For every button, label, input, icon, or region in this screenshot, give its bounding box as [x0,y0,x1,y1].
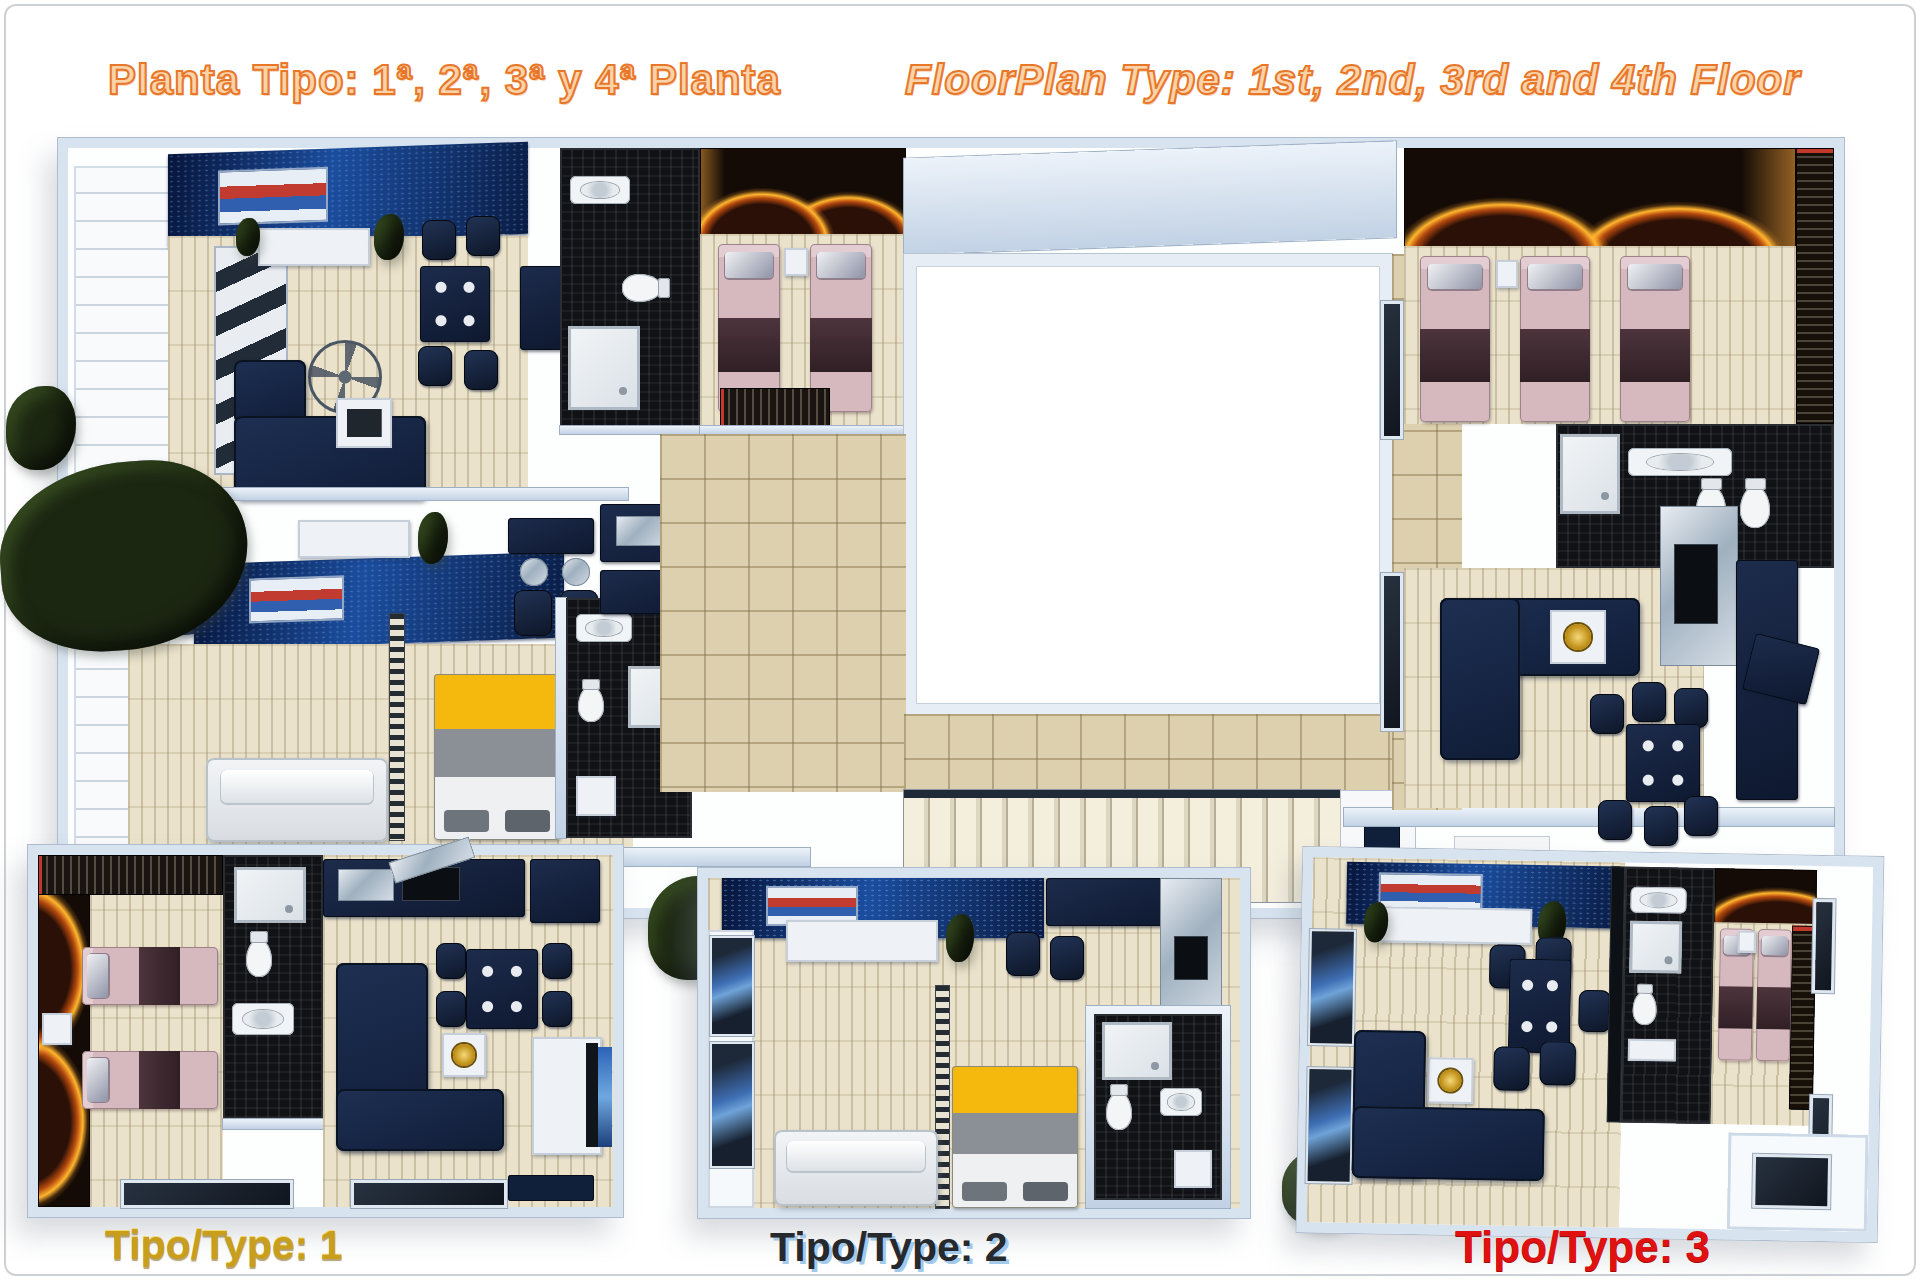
coffee-table [442,1033,486,1077]
washing-machine [1174,1150,1212,1188]
cooktop [1674,544,1718,624]
sofa-chaise [1440,598,1520,760]
dining-table [1508,959,1572,1054]
twin-bed [1620,256,1690,422]
type3-floor-plan [1297,847,1884,1242]
double-bed [952,1066,1078,1208]
t2-sideboard [786,920,938,962]
dining-chair [1632,682,1666,722]
coffee-table [1427,1057,1474,1104]
hallway-tiles [904,714,1392,792]
page-title-english: FloorPlan Type: 1st, 2nd, 3rd and 4th Fl… [905,56,1801,104]
dining-chair [464,350,498,390]
t1-wardrobe-rail [38,855,223,895]
sink [232,1003,294,1035]
nightstand [1738,931,1756,953]
toilet [246,939,272,977]
unit-b-sideboard [298,520,410,558]
interior-wall [556,598,566,838]
toilet [1106,1092,1132,1130]
wall-artwork [598,1047,612,1147]
dining-chair [1578,990,1611,1033]
t3-fire-ceiling [1714,868,1817,926]
coffee-table [336,398,392,448]
hallway-tiles [660,434,906,792]
bar-stool [520,558,548,586]
page-title-spanish: Planta Tipo: 1ª, 2ª, 3ª y 4ª Planta [108,56,781,104]
shower [1102,1022,1172,1080]
courtyard-window [1384,304,1400,436]
nightstand [42,1013,72,1045]
sofa [1352,1106,1545,1181]
shower [1560,434,1620,514]
twin-bed [718,244,780,412]
bedroom-fire-ceiling [700,148,906,236]
wall-artwork [712,938,752,1034]
shower [234,867,306,923]
wall-artwork [1308,1069,1352,1182]
sofa-chaise [234,360,306,424]
bathroom-cabinet [1628,1039,1676,1062]
toilet [578,686,604,722]
dining-chair [1644,806,1678,846]
white-sofa [206,758,388,842]
washing-machine [576,776,616,816]
front-wall-right [1344,808,1834,826]
sofa-chaise [336,1089,504,1151]
toilet [1632,991,1657,1025]
dining-chair [418,346,452,386]
dining-chair [1539,1041,1576,1086]
stool [1006,932,1040,976]
dining-chair [436,943,466,979]
dining-table [420,266,490,342]
unit-a-wall-poster [218,167,328,226]
dining-table [466,949,538,1029]
t3-sideboard [1380,906,1533,945]
bar-stool [562,558,590,586]
coffee-table [1550,610,1606,664]
twin-bed [1420,256,1490,422]
stool [1050,936,1084,980]
window [354,1183,504,1205]
oven [1174,936,1208,980]
wall-artwork [1310,931,1354,1044]
label-type-1: Tipo/Type: 1 [105,1222,343,1269]
twin-bed [1520,256,1590,422]
unit-b-wall-poster [249,575,344,623]
double-bed [434,674,560,840]
dining-chair [1598,800,1632,840]
courtyard-top-wall [904,141,1396,254]
tv-screen [586,1043,598,1147]
interior-wall [700,426,906,434]
fridge-cabinet [530,859,600,923]
type1-floor-plan [28,845,623,1217]
shower [568,326,640,410]
courtyard-lightwell [904,254,1392,716]
twin-bed [82,1051,218,1109]
nightstand [784,248,808,276]
dining-chair [436,991,466,1027]
type2-floor-plan [698,868,1250,1218]
floorplan-sheet: Planta Tipo: 1ª, 2ª, 3ª y 4ª Planta Floo… [0,0,1920,1280]
interior-wall [560,426,700,434]
dining-chair [466,216,500,256]
label-type-3: Tipo/Type: 3 [1455,1222,1710,1272]
double-sink-vanity [1628,448,1732,476]
window [124,1183,290,1205]
interior-wall [168,488,628,500]
unit-b-accent-wall [194,552,564,651]
twin-bed [82,947,218,1005]
dining-chair [422,220,456,260]
dining-chair [542,943,572,979]
dining-chair [1674,688,1708,728]
wardrobe-rail [720,388,830,428]
kitchen-sink-steel [338,869,394,901]
wardrobe-shelves [1789,926,1816,1110]
shower [1629,921,1682,974]
wardrobe-shelves [1796,148,1834,424]
wall-artwork [712,1044,752,1166]
balcony-mat [508,1175,594,1201]
main-floor-plan [58,138,1844,918]
nightstand [1496,260,1518,288]
dining-chair [542,991,572,1027]
sink [1160,1088,1202,1116]
interior-wall [223,1119,323,1129]
unit-c-fire-ceiling [1404,148,1796,248]
twin-bed [810,244,872,412]
console-table [508,518,594,554]
window [1755,1157,1828,1206]
slatted-divider [390,614,404,840]
dining-chair [1684,796,1718,836]
unit-a-sideboard [258,228,370,266]
kitchen-island [520,266,564,350]
sink [570,176,630,204]
window [1815,902,1833,990]
sink [576,614,632,642]
courtyard-window [1384,576,1400,728]
label-type-2: Tipo/Type: 2 [770,1224,1008,1271]
bidet [1740,486,1770,528]
chair [514,590,552,636]
sink [1630,887,1686,914]
white-sofa [774,1130,938,1206]
twin-bed [1756,929,1792,1062]
dining-chair [1590,694,1624,734]
kitchen-counter [1046,878,1178,926]
dining-chair [1493,1046,1530,1091]
dining-table [1626,724,1700,802]
